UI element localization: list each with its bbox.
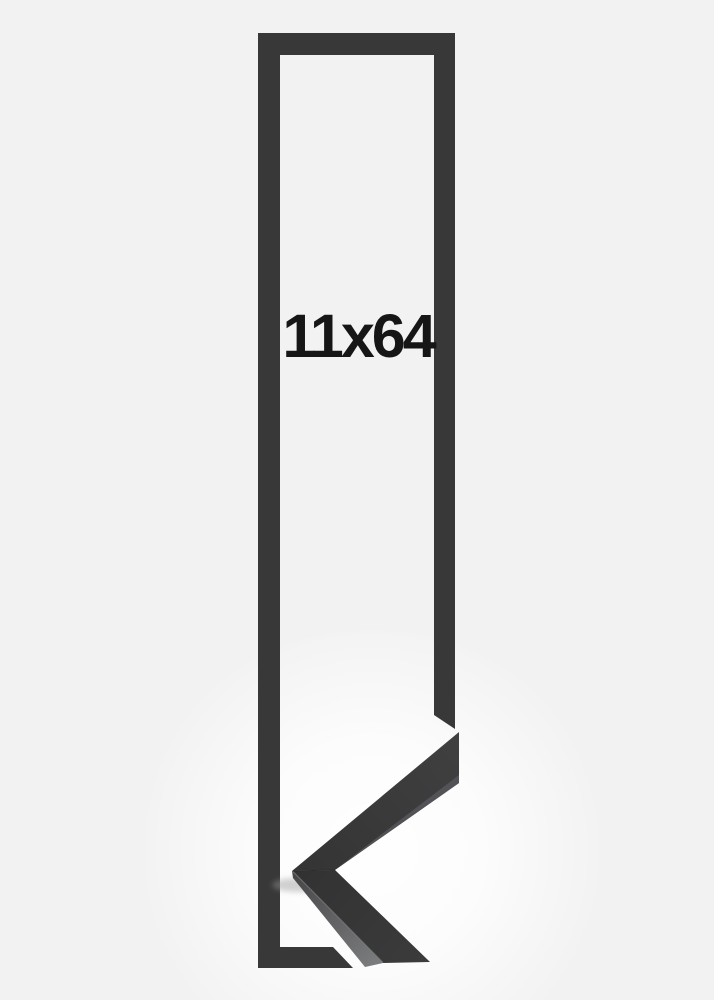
frame-outline-top-bar	[258, 33, 455, 55]
frame-outline-left-bar	[258, 33, 280, 968]
frame-size-label: 11x64	[258, 303, 458, 371]
product-preview-image: 11x64	[0, 0, 714, 1000]
frame-size-illustration	[0, 0, 714, 1000]
frame-outline-right-bar	[434, 55, 455, 729]
